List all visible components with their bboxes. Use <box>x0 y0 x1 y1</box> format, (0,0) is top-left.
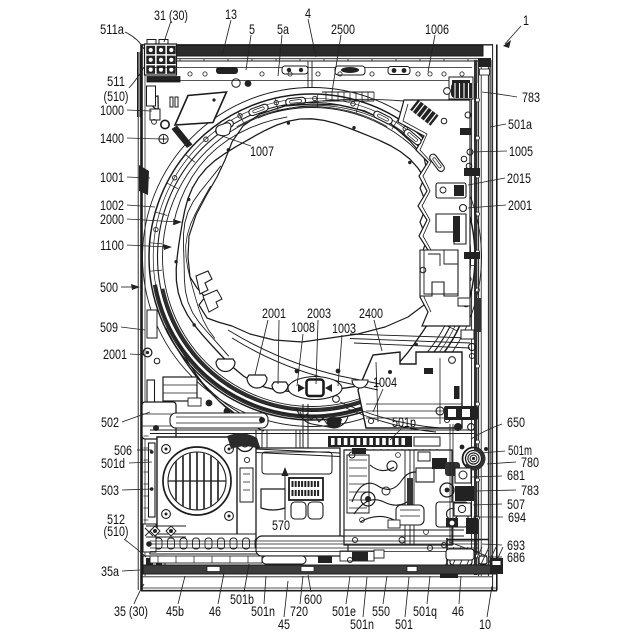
svg-text:2000: 2000 <box>100 211 124 227</box>
svg-text:783: 783 <box>522 89 540 105</box>
svg-text:4: 4 <box>305 5 311 21</box>
svg-text:1006: 1006 <box>425 21 449 37</box>
svg-text:500: 500 <box>100 279 118 295</box>
svg-text:2001: 2001 <box>508 197 532 213</box>
svg-text:2001: 2001 <box>262 305 286 321</box>
svg-text:501d: 501d <box>101 455 125 471</box>
svg-text:1007: 1007 <box>250 143 274 159</box>
svg-text:511a: 511a <box>100 21 124 37</box>
svg-text:694: 694 <box>508 509 526 525</box>
svg-text:5a: 5a <box>277 21 289 37</box>
svg-text:686: 686 <box>507 549 525 565</box>
svg-text:501n: 501n <box>251 603 275 619</box>
svg-text:35a: 35a <box>101 563 119 579</box>
svg-text:2500: 2500 <box>331 21 355 37</box>
svg-text:46: 46 <box>452 603 464 619</box>
svg-text:45b: 45b <box>166 603 184 619</box>
svg-text:10: 10 <box>479 616 491 632</box>
svg-text:46: 46 <box>209 603 221 619</box>
svg-text:1: 1 <box>523 12 529 28</box>
svg-text:501n: 501n <box>350 616 374 632</box>
svg-text:1001: 1001 <box>100 169 124 185</box>
svg-text:570: 570 <box>272 517 290 533</box>
svg-text:503: 503 <box>101 482 119 498</box>
svg-text:502: 502 <box>101 414 119 430</box>
svg-text:720: 720 <box>290 603 308 619</box>
svg-text:501p: 501p <box>392 414 416 430</box>
svg-text:1005: 1005 <box>509 143 533 159</box>
svg-text:31 (30): 31 (30) <box>154 7 188 23</box>
svg-text:1000: 1000 <box>100 102 124 118</box>
svg-text:550: 550 <box>372 603 390 619</box>
svg-text:681: 681 <box>507 467 525 483</box>
svg-text:45: 45 <box>278 616 290 632</box>
svg-text:5: 5 <box>249 21 255 37</box>
svg-text:2001: 2001 <box>103 346 127 362</box>
svg-text:2400: 2400 <box>359 305 383 321</box>
svg-text:1004: 1004 <box>373 374 397 390</box>
svg-text:650: 650 <box>507 414 525 430</box>
svg-text:509: 509 <box>100 319 118 335</box>
svg-text:501a: 501a <box>508 116 532 132</box>
svg-text:501: 501 <box>395 616 413 632</box>
svg-text:501q: 501q <box>413 603 437 619</box>
svg-text:1100: 1100 <box>100 237 124 253</box>
svg-text:13: 13 <box>225 6 237 22</box>
svg-text:35 (30): 35 (30) <box>114 603 148 619</box>
svg-text:2015: 2015 <box>507 170 531 186</box>
svg-text:(510): (510) <box>104 523 129 539</box>
svg-text:511: 511 <box>107 73 125 89</box>
svg-text:1400: 1400 <box>100 130 124 146</box>
svg-text:1008: 1008 <box>291 319 315 335</box>
svg-text:1003: 1003 <box>332 320 356 336</box>
